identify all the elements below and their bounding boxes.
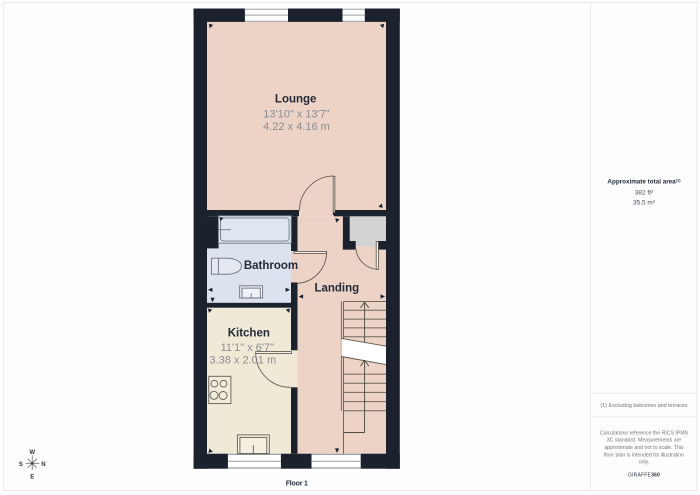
svg-text:W: W bbox=[29, 450, 35, 456]
svg-text:Landing: Landing bbox=[314, 282, 359, 294]
svg-text:Floor 1: Floor 1 bbox=[286, 481, 308, 488]
svg-text:11'1" x 6'7": 11'1" x 6'7" bbox=[221, 342, 274, 354]
svg-text:13'10" x 13'7": 13'10" x 13'7" bbox=[263, 109, 330, 121]
svg-text:N: N bbox=[41, 462, 45, 468]
svg-text:(1) Excluding balconies and te: (1) Excluding balconies and terraces bbox=[600, 403, 687, 409]
svg-text:3C standard. Measurements are: 3C standard. Measurements are bbox=[607, 438, 682, 444]
svg-text:floor plan is intended for ill: floor plan is intended for illustration bbox=[604, 452, 684, 458]
svg-text:GIRAFFE360: GIRAFFE360 bbox=[628, 472, 660, 478]
svg-text:approximate and not to scale.: approximate and not to scale. This bbox=[604, 445, 684, 451]
svg-text:S: S bbox=[19, 462, 23, 468]
svg-text:3.38 x 2.01 m: 3.38 x 2.01 m bbox=[209, 354, 276, 366]
svg-text:35.5 m²: 35.5 m² bbox=[633, 199, 656, 206]
svg-text:Approximate total area(1): Approximate total area(1) bbox=[607, 178, 681, 186]
svg-text:only.: only. bbox=[639, 459, 650, 465]
svg-text:382 ft²: 382 ft² bbox=[635, 190, 654, 197]
svg-text:Bathroom: Bathroom bbox=[244, 260, 298, 272]
svg-text:E: E bbox=[30, 474, 34, 480]
svg-text:Calculations reference the RIC: Calculations reference the RICS IPMS bbox=[600, 430, 689, 436]
svg-text:4.22 x 4.16 m: 4.22 x 4.16 m bbox=[263, 121, 330, 133]
svg-text:Lounge: Lounge bbox=[275, 93, 317, 105]
svg-text:Kitchen: Kitchen bbox=[228, 328, 270, 340]
